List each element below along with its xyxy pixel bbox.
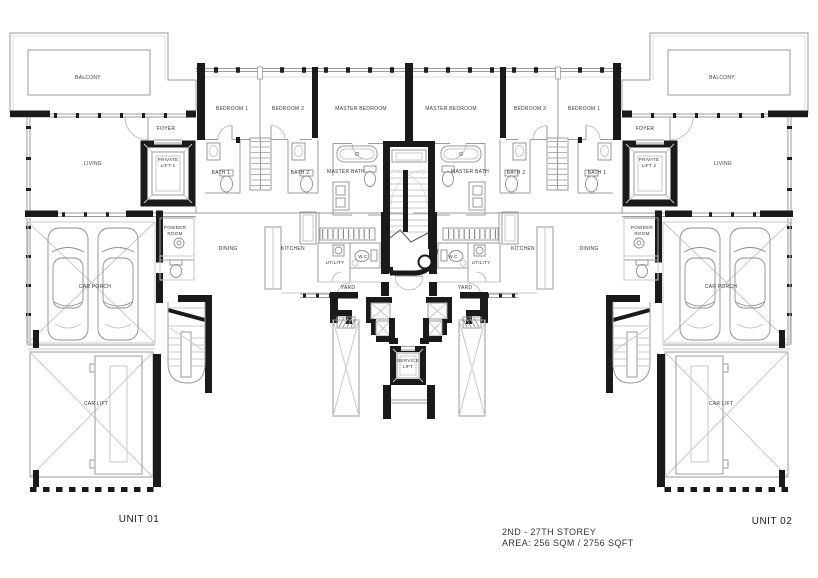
room-label-foyer-u1: FOYER: [157, 126, 175, 133]
room-label-service-lift: SERVICE LIFT: [397, 358, 419, 370]
balcony-outline: [10, 33, 196, 113]
room-label-balcony-u1: BALCONY: [75, 75, 101, 82]
room-label-car-lift-u1: CAR LIFT: [84, 401, 108, 408]
room-label-living-u2: LIVING: [714, 161, 732, 168]
room-label-bedroom1-u1: BEDROOM 1: [216, 106, 248, 113]
car-lift-area: [30, 330, 161, 490]
room-label-dining-u1: DINING: [219, 246, 238, 253]
living-south-wall: [25, 211, 405, 218]
bedroom-window-wall: [196, 63, 405, 140]
living-west-window: [27, 117, 30, 211]
room-label-yard-u2: YARD: [458, 285, 473, 292]
room-label-utility-u2: UTILITY: [472, 260, 491, 266]
room-label-kitchen-u1: KITCHEN: [281, 246, 305, 253]
room-label-bath2-u1: BATH 2: [291, 170, 310, 177]
room-label-bedroom2-u1: BEDROOM 2: [272, 106, 304, 113]
floor-plan-page: BALCONY BEDROOM 1 BEDROOM 2 MASTER BEDRO…: [0, 0, 818, 578]
room-label-powder-room-u1: POWDER ROOM: [164, 225, 186, 237]
internal-stair: [168, 295, 212, 393]
room-label-private-lift-u1: PRIVATE LIFT-1: [158, 157, 179, 169]
private-lift: [144, 138, 192, 204]
room-label-master-bath-u1: MASTER BATH: [327, 169, 365, 176]
master-bath: [319, 143, 383, 243]
room-label-car-lift-u2: CAR LIFT: [709, 401, 733, 408]
room-label-bath1-u1: BATH 1: [212, 170, 231, 177]
room-label-bath1-u2: BATH 1: [588, 170, 607, 177]
unit1-title: UNIT 01: [119, 514, 160, 525]
room-label-master-bedroom-u2: MASTER BEDROOM: [425, 106, 477, 113]
room-label-car-porch-u1: CAR PORCH: [79, 284, 111, 291]
room-label-foyer-u2: FOYER: [636, 126, 654, 133]
room-label-utility-u1: UTILITY: [326, 260, 345, 266]
kitchen-dining: [265, 212, 332, 293]
unit2-title: UNIT 02: [752, 516, 793, 527]
room-label-bedroom2-u2: BEDROOM 2: [514, 106, 546, 113]
room-label-living-u1: LIVING: [84, 161, 102, 168]
left-half-structure: [10, 33, 405, 490]
room-label-private-lift-u2: PRIVATE LIFT 2: [639, 157, 660, 169]
room-label-powder-room-u2: POWDER ROOM: [631, 225, 653, 237]
floor-plan-drawing: [0, 0, 818, 578]
room-label-master-bedroom-u1: MASTER BEDROOM: [335, 106, 387, 113]
storey-note: 2ND - 27TH STOREY: [502, 527, 596, 537]
room-label-wc-u1: W.C: [358, 254, 367, 260]
room-label-car-porch-u2: CAR PORCH: [705, 284, 737, 291]
room-label-dining-u2: DINING: [580, 246, 599, 253]
room-label-yard-u1: YARD: [341, 285, 356, 292]
bath2: [288, 140, 318, 193]
room-label-balcony-u2: BALCONY: [709, 75, 735, 82]
room-label-wc-u2: W.C: [448, 254, 457, 260]
bath1: [205, 137, 240, 193]
room-label-kitchen-u2: KITCHEN: [511, 246, 535, 253]
room-label-bedroom1-u2: BEDROOM 1: [568, 106, 600, 113]
area-note: AREA: 256 SQM / 2756 SQFT: [502, 538, 634, 548]
room-label-bath2-u2: BATH 2: [507, 170, 526, 177]
room-label-master-bath-u2: MASTER BATH: [451, 169, 489, 176]
